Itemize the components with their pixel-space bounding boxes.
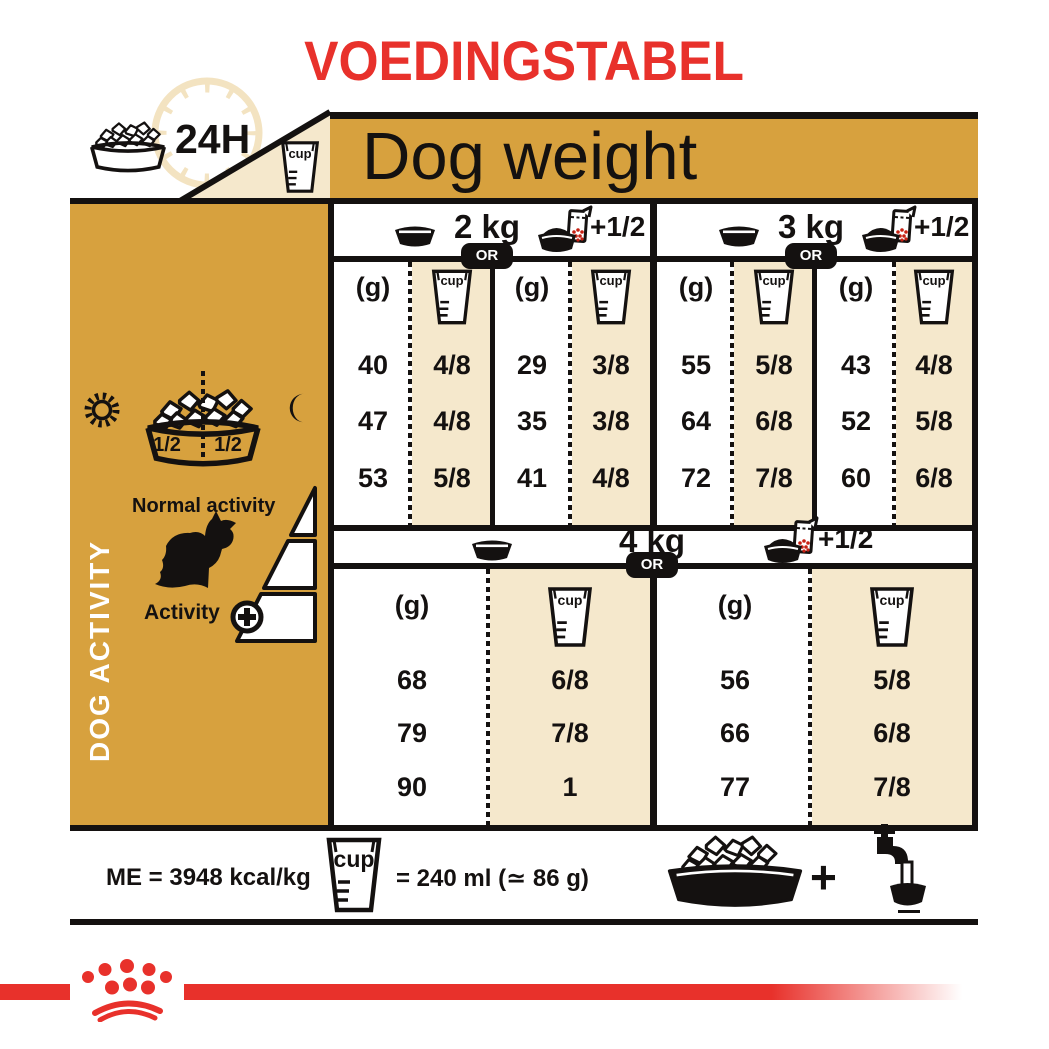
table-cell: 41 bbox=[500, 463, 564, 494]
table-cell: 53 bbox=[341, 463, 405, 494]
cup-label: cup bbox=[317, 846, 391, 873]
kibble-bowl-icon bbox=[658, 832, 812, 914]
table-cell: 4/8 bbox=[902, 350, 966, 381]
table-center-divider-bottom bbox=[650, 569, 657, 825]
table-cell: 5/8 bbox=[860, 665, 924, 696]
table-cell: 6/8 bbox=[538, 665, 602, 696]
table-cell: 55 bbox=[664, 350, 728, 381]
bowl-split-dotted-line bbox=[201, 371, 205, 469]
dotted-divider bbox=[892, 262, 896, 525]
cup-label: cup bbox=[868, 592, 916, 608]
table-cell: 4/8 bbox=[420, 406, 484, 437]
table-cell: 1 bbox=[538, 772, 602, 803]
cup-label: cup bbox=[589, 273, 633, 288]
grams-header: (g) bbox=[664, 272, 728, 303]
moon-icon bbox=[283, 388, 313, 428]
table-cell: 79 bbox=[380, 718, 444, 749]
table-cell: 56 bbox=[703, 665, 767, 696]
table-bottom-border bbox=[70, 825, 978, 831]
brand-band-left bbox=[0, 984, 70, 1000]
plus-half-3kg: +1/2 bbox=[914, 211, 969, 243]
plus-sign: + bbox=[810, 850, 837, 904]
cup-label: cup bbox=[912, 273, 956, 288]
bowl-pouch-icon bbox=[532, 205, 594, 257]
table-cell: 7/8 bbox=[742, 463, 806, 494]
table-cell: 68 bbox=[380, 665, 444, 696]
cup-equivalence-label: = 240 ml (≃ 86 g) bbox=[396, 864, 589, 893]
plus-circle-icon bbox=[229, 599, 265, 635]
me-kcal-label: ME = 3948 kcal/kg bbox=[106, 864, 311, 892]
or-pill-4kg: OR bbox=[626, 552, 678, 578]
pair-divider bbox=[490, 262, 495, 525]
table-cell: 90 bbox=[380, 772, 444, 803]
bowl-pouch-icon bbox=[856, 205, 918, 257]
or-pill-2kg: OR bbox=[461, 243, 513, 269]
dog-activity-label: DOG ACTIVITY bbox=[84, 483, 120, 818]
dotted-divider bbox=[568, 262, 572, 525]
table-cell: 29 bbox=[500, 350, 564, 381]
table-cell: 5/8 bbox=[742, 350, 806, 381]
table-center-divider-top bbox=[650, 204, 657, 531]
dog-silhouette-icon bbox=[144, 510, 246, 594]
table-cell: 52 bbox=[824, 406, 888, 437]
empty-bowl-icon bbox=[392, 222, 438, 248]
bowl-pouch-icon bbox=[758, 516, 820, 568]
dotted-divider bbox=[408, 262, 412, 525]
dotted-divider bbox=[486, 569, 490, 825]
table-cell: 66 bbox=[703, 718, 767, 749]
kibble-bowl-icon bbox=[82, 118, 174, 176]
empty-bowl-icon bbox=[716, 222, 762, 248]
table-cell: 6/8 bbox=[742, 406, 806, 437]
sun-icon bbox=[80, 388, 124, 432]
empty-bowl-icon bbox=[469, 536, 515, 562]
dotted-divider bbox=[730, 262, 734, 525]
cup-label: cup bbox=[752, 273, 796, 288]
table-cell: 4/8 bbox=[579, 463, 643, 494]
table-cell: 6/8 bbox=[902, 463, 966, 494]
table-cell: 35 bbox=[500, 406, 564, 437]
grams-header: (g) bbox=[703, 590, 767, 621]
cup-label: cup bbox=[546, 592, 594, 608]
table-cell: 47 bbox=[341, 406, 405, 437]
table-cell: 5/8 bbox=[902, 406, 966, 437]
table-cell: 40 bbox=[341, 350, 405, 381]
grams-header: (g) bbox=[380, 590, 444, 621]
table-cell: 3/8 bbox=[579, 406, 643, 437]
activity-label: Activity bbox=[144, 601, 220, 625]
cup-label: cup bbox=[430, 273, 474, 288]
weight-2kg-label: 2 kg bbox=[445, 208, 529, 246]
grams-header: (g) bbox=[341, 272, 405, 303]
table-cell: 7/8 bbox=[860, 772, 924, 803]
table-cell: 7/8 bbox=[538, 718, 602, 749]
half-left-label: 1/2 bbox=[147, 434, 187, 457]
table-cell: 60 bbox=[824, 463, 888, 494]
table-cell: 77 bbox=[703, 772, 767, 803]
brand-band-right bbox=[184, 984, 978, 1000]
grams-header: (g) bbox=[824, 272, 888, 303]
royal-canin-crown-icon bbox=[74, 956, 180, 1022]
grams-header: (g) bbox=[500, 272, 564, 303]
half-right-label: 1/2 bbox=[208, 434, 248, 457]
footer-bottom-border bbox=[70, 919, 978, 925]
pair-divider bbox=[812, 262, 817, 525]
table-right-border bbox=[972, 204, 978, 825]
weight-3kg-label: 3 kg bbox=[769, 208, 853, 246]
table-cell: 72 bbox=[664, 463, 728, 494]
table-cell: 64 bbox=[664, 406, 728, 437]
or-pill-3kg: OR bbox=[785, 243, 837, 269]
table-cell: 3/8 bbox=[579, 350, 643, 381]
table-cell: 43 bbox=[824, 350, 888, 381]
table-cell: 6/8 bbox=[860, 718, 924, 749]
table-cell: 5/8 bbox=[420, 463, 484, 494]
cup-label: cup bbox=[277, 146, 323, 161]
plus-half-4kg: +1/2 bbox=[818, 523, 873, 555]
dotted-divider bbox=[808, 569, 812, 825]
dog-weight-title: Dog weight bbox=[362, 118, 697, 195]
plus-half-2kg: +1/2 bbox=[590, 211, 645, 243]
table-cell: 4/8 bbox=[420, 350, 484, 381]
feeding-table-page: VOEDINGSTABEL 24H cup Dog weight 1/2 1/2… bbox=[0, 0, 1049, 1049]
faucet-water-icon bbox=[850, 824, 944, 918]
